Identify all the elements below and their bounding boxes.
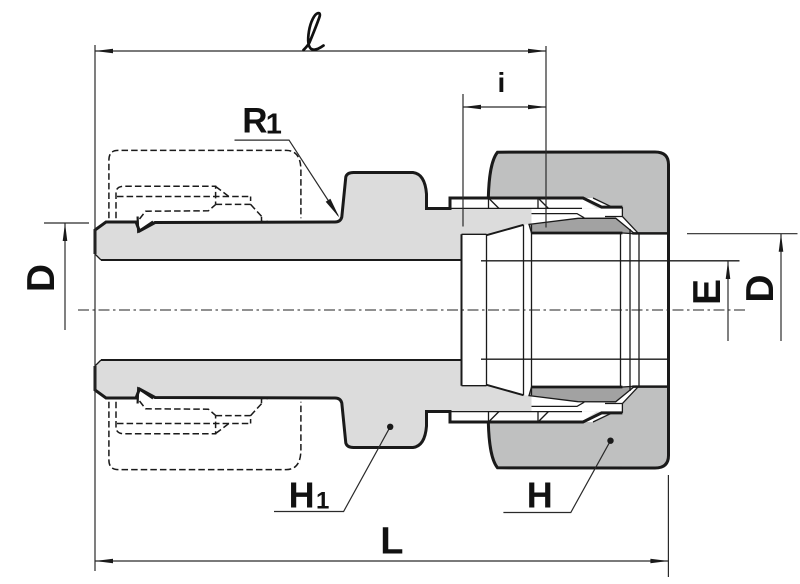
svg-text:i: i: [498, 67, 506, 98]
svg-text:H: H: [289, 475, 315, 516]
svg-text:D: D: [739, 274, 782, 302]
svg-text:E: E: [686, 279, 729, 305]
svg-text:R: R: [242, 102, 267, 141]
svg-text:1: 1: [266, 109, 282, 141]
svg-text:1: 1: [316, 488, 329, 515]
svg-text:L: L: [380, 520, 403, 562]
svg-text:H: H: [527, 474, 553, 515]
svg-text:D: D: [20, 264, 63, 292]
